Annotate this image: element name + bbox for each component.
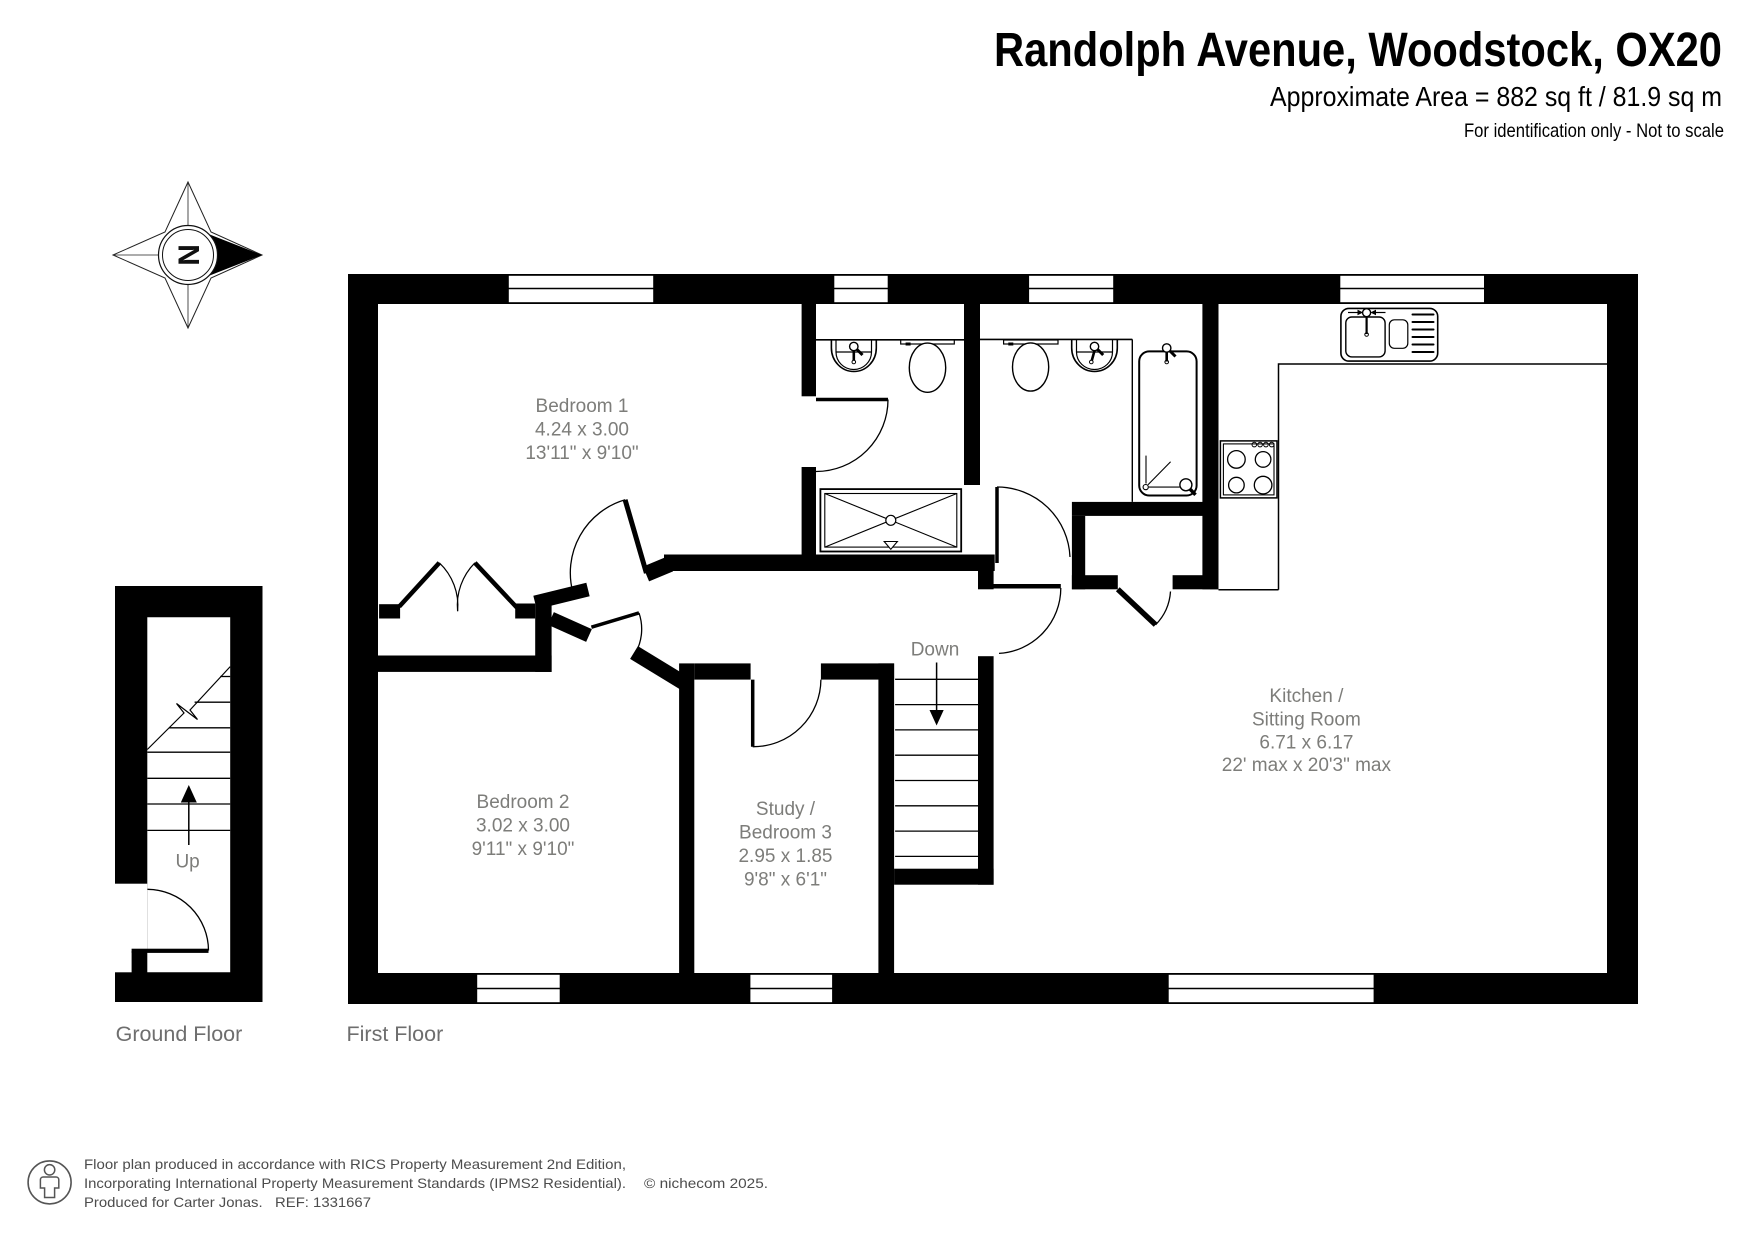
svg-text:9'11" x 9'10": 9'11" x 9'10" [472, 839, 575, 860]
svg-text:Down: Down [911, 640, 960, 661]
svg-text:Kitchen /: Kitchen / [1269, 686, 1344, 707]
svg-text:Study /: Study / [756, 799, 816, 820]
svg-text:Sitting Room: Sitting Room [1252, 710, 1361, 731]
svg-text:Bedroom 3: Bedroom 3 [739, 823, 832, 844]
svg-text:Bedroom 2: Bedroom 2 [477, 792, 570, 813]
svg-text:N: N [172, 244, 205, 266]
svg-text:Floor plan produced in accorda: Floor plan produced in accordance with R… [84, 1156, 626, 1172]
svg-text:22' max x 20'3" max: 22' max x 20'3" max [1222, 755, 1392, 776]
svg-text:Produced for Carter Jonas. R: Produced for Carter Jonas. REF: 1331667 [84, 1194, 371, 1210]
svg-text:13'11" x 9'10": 13'11" x 9'10" [525, 443, 638, 464]
svg-text:First Floor: First Floor [347, 1022, 444, 1046]
svg-text:Randolph Avenue, Woodstock, OX: Randolph Avenue, Woodstock, OX20 [994, 24, 1722, 77]
svg-text:© nichecom 2025.: © nichecom 2025. [644, 1175, 768, 1191]
svg-text:6.71 x 6.17: 6.71 x 6.17 [1259, 733, 1353, 754]
svg-text:4.24 x 3.00: 4.24 x 3.00 [535, 420, 629, 441]
svg-text:3.02 x 3.00: 3.02 x 3.00 [476, 816, 570, 837]
svg-text:Ground Floor: Ground Floor [116, 1022, 243, 1046]
svg-text:For identification only - Not: For identification only - Not to scale [1464, 120, 1724, 142]
svg-text:Approximate Area = 882 sq ft /: Approximate Area = 882 sq ft / 81.9 sq m [1270, 81, 1722, 112]
svg-text:2.95 x 1.85: 2.95 x 1.85 [738, 846, 832, 867]
svg-text:Bedroom 1: Bedroom 1 [536, 396, 629, 417]
svg-text:Up: Up [175, 852, 199, 873]
svg-text:9'8" x 6'1": 9'8" x 6'1" [744, 870, 827, 891]
svg-text:Incorporating International Pr: Incorporating International Property Mea… [84, 1175, 626, 1191]
